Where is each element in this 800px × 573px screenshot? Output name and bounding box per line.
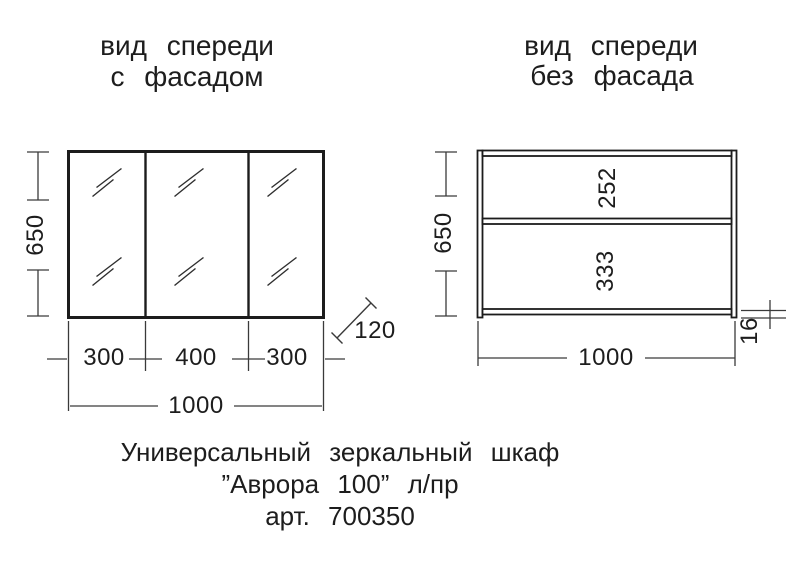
caption-article-number: арт. 700350 xyxy=(265,503,415,529)
mirror-glass-marks xyxy=(93,169,297,286)
dimension-height-right: 650 xyxy=(432,212,456,254)
technical-drawing-page: вид спереди с фасадом вид спереди без фа… xyxy=(0,0,800,573)
right-view-title-line2: без фасада xyxy=(530,62,693,90)
left-dimension-lines xyxy=(27,152,345,411)
dimension-lower-section: 333 xyxy=(594,250,618,292)
dimension-panel-thickness: 16 xyxy=(738,317,762,345)
left-view-title-line2: с фасадом xyxy=(110,63,263,91)
right-view-title-line1: вид спереди xyxy=(524,32,698,60)
dimension-upper-section: 252 xyxy=(596,167,620,209)
caption-product-name: Универсальный зеркальный шкаф xyxy=(121,439,560,465)
dimension-door-left: 300 xyxy=(83,346,125,370)
dimension-depth: 120 xyxy=(354,319,396,343)
dimension-height-left: 650 xyxy=(24,214,48,256)
caption-model-name: ”Аврора 100” л/пр xyxy=(221,471,458,497)
dimension-total-width-right: 1000 xyxy=(578,346,633,370)
dimension-door-right: 300 xyxy=(266,346,308,370)
dimension-door-center: 400 xyxy=(175,346,217,370)
dimension-total-width-left: 1000 xyxy=(168,394,223,418)
left-view-title-line1: вид спереди xyxy=(100,32,274,60)
